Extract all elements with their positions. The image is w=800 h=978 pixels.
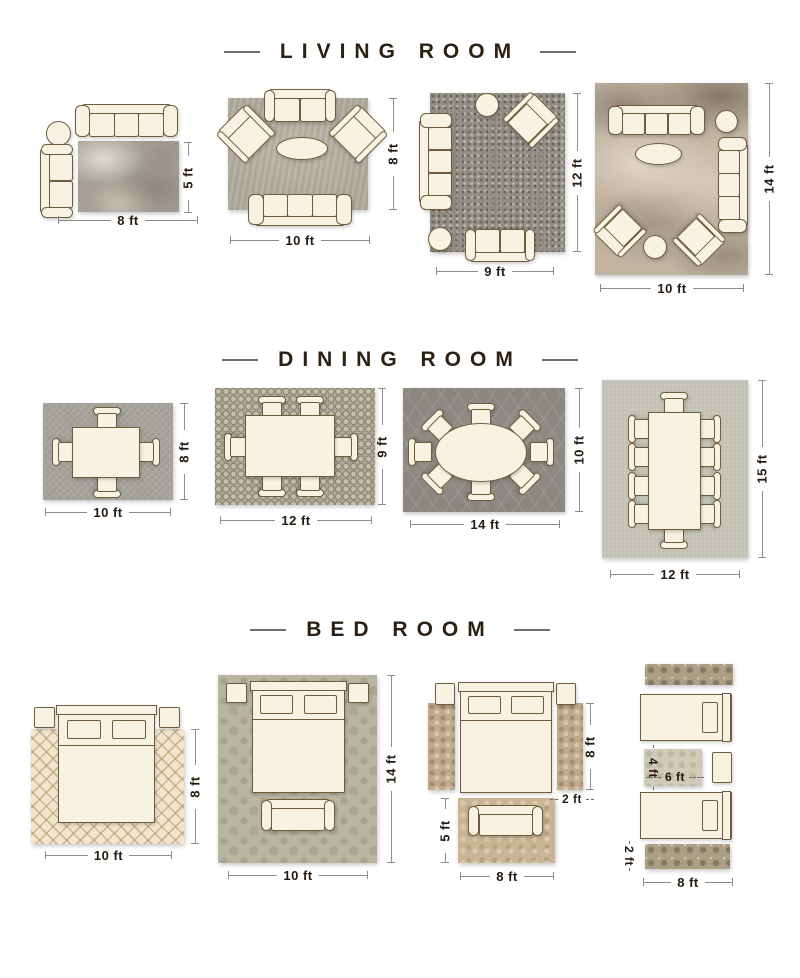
rug-size-guide: LIVING ROOM 8 ft 5 ft 10 ft 8 ft 9 ft 12… [0,0,800,978]
dimension-line [629,868,630,871]
twin-bed [640,694,732,741]
dimension-line [689,777,704,778]
runner-width-dimension-label: 8 ft [677,875,699,890]
nightstand [712,752,732,783]
dimension-line [705,882,733,883]
dimension-line [629,841,630,844]
twin-bed [640,792,732,839]
center-rug-width-dimension: 6 ft [646,769,704,785]
runner-width-dimension: 8 ft [643,874,733,890]
dimension-line [646,777,661,778]
dimension-line [653,787,654,790]
dimension-line [643,882,671,883]
runner-height-dimension: 2 ft [622,841,636,871]
layout-bed-room-twin-beds: 4 ft 6 ft 2 ft 8 ft [0,0,800,978]
center-rug-width-dimension-label: 6 ft [665,770,685,784]
runner-height-dimension-label: 2 ft [622,848,636,864]
dimension-line [653,745,654,748]
runner-top [645,664,733,685]
runner-bottom [645,844,730,869]
